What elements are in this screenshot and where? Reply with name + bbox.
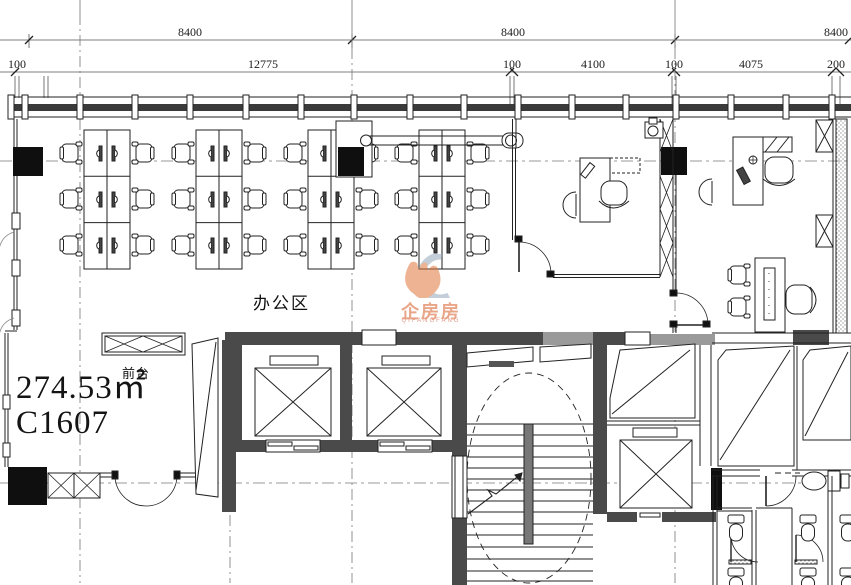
dim-100-a: 100 bbox=[8, 57, 26, 72]
dim-200: 200 bbox=[827, 57, 845, 72]
elevator-1 bbox=[255, 356, 331, 436]
dim-8400-left: 8400 bbox=[178, 25, 202, 40]
unit-number: C1607 bbox=[16, 407, 109, 440]
elevator-3 bbox=[607, 344, 711, 517]
unit-area-text: 274.53㎡ bbox=[16, 372, 147, 405]
elevator-2 bbox=[367, 356, 441, 436]
entry-wall-and-door bbox=[48, 471, 196, 506]
reception-counter bbox=[102, 333, 185, 355]
office-desk-clusters bbox=[60, 130, 489, 269]
toilets bbox=[712, 333, 851, 585]
watermark-logo bbox=[390, 254, 468, 298]
dim-8400-mid: 8400 bbox=[501, 25, 525, 40]
dimension-row-2 bbox=[0, 68, 851, 104]
watermark-subtext: QIFANGFANG bbox=[398, 318, 464, 324]
dim-4075: 4075 bbox=[739, 57, 763, 72]
dim-8400-right: 8400 bbox=[824, 25, 848, 40]
office-area-label: 办公区 bbox=[253, 289, 310, 314]
dim-12775: 12775 bbox=[248, 57, 278, 72]
exec-office-left bbox=[513, 118, 674, 278]
curtain-wall bbox=[8, 95, 851, 119]
dim-100-c: 100 bbox=[665, 57, 683, 72]
dimension-row-1 bbox=[0, 34, 851, 48]
dim-100-b: 100 bbox=[503, 57, 521, 72]
dim-4100: 4100 bbox=[581, 57, 605, 72]
shaft-panel bbox=[192, 338, 218, 497]
watermark: 企房房 QIFANGFANG bbox=[390, 254, 468, 328]
stairwell bbox=[467, 344, 593, 583]
exec-office-right bbox=[670, 119, 847, 333]
watermark-hand-icon bbox=[405, 262, 440, 298]
floor-plan: 8400 8400 8400 100 12775 100 4100 100 40… bbox=[0, 0, 851, 585]
